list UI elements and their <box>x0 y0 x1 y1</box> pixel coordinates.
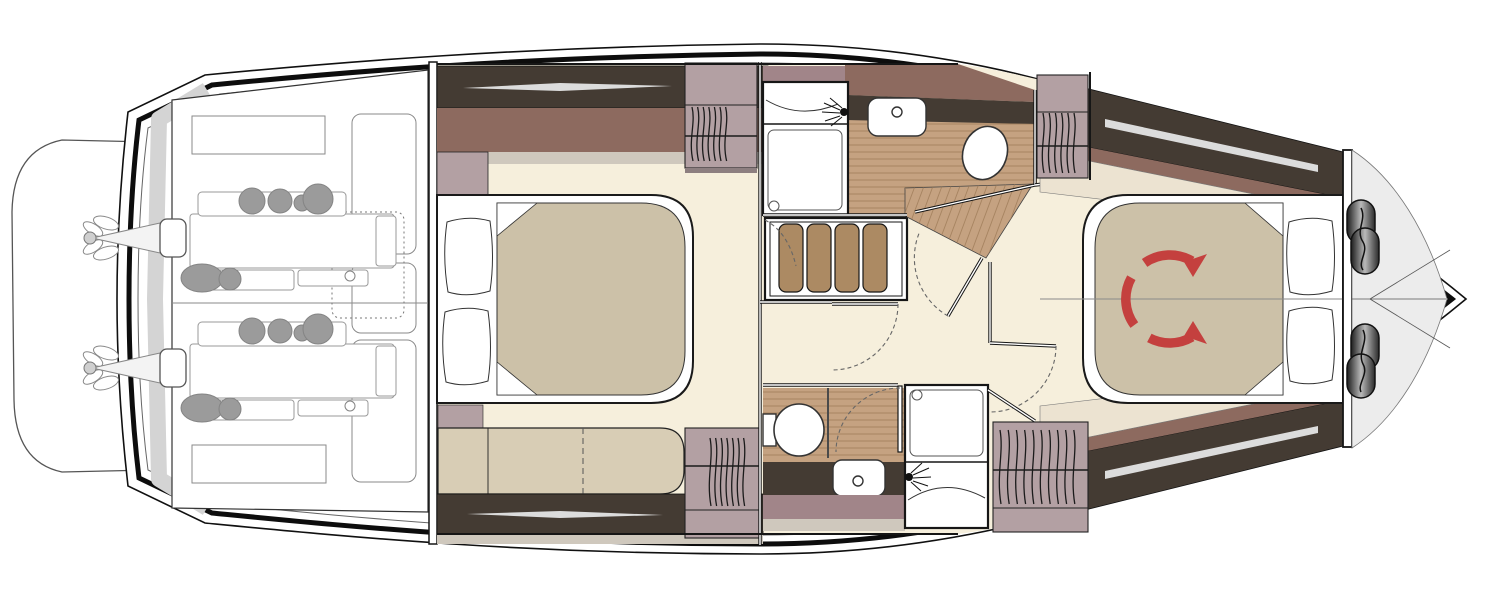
lower-toilet <box>774 404 824 456</box>
lower-head-door-leaf <box>898 386 902 452</box>
hanging-locker-master-bottom <box>993 422 1088 532</box>
upper-shower <box>763 82 848 215</box>
master-pillow-2 <box>1287 307 1335 384</box>
mid-bed-mattress <box>497 203 685 395</box>
bow-bulkhead <box>1343 150 1352 447</box>
upper-sink-faucet <box>892 107 902 117</box>
cabinet-end-small <box>438 405 483 428</box>
mid-bed-pillow-2 <box>443 308 491 385</box>
mid-bed-pillow-1 <box>445 218 493 295</box>
stair-tread <box>835 224 859 292</box>
stair-tread <box>863 224 887 292</box>
hanging-locker-master-top <box>1037 75 1088 178</box>
hanging-locker-aft <box>685 428 760 538</box>
lower-shower <box>905 385 988 528</box>
companionway-stairs <box>765 218 907 300</box>
mid-sofa <box>438 428 684 494</box>
shower-head-icon <box>840 108 848 116</box>
lower-head-strip <box>763 519 905 531</box>
hanging-locker-top <box>685 63 757 173</box>
floor-plan-canvas <box>0 0 1500 615</box>
stair-tread <box>807 224 831 292</box>
engine-room-bulkhead <box>429 62 437 544</box>
lower-head-mauve-band <box>763 495 905 519</box>
stair-tread <box>779 224 803 292</box>
lower-sink-faucet <box>853 476 863 486</box>
bow-cleat-bottom <box>1347 324 1379 398</box>
wardrobe-end <box>437 152 488 196</box>
master-pillow-1 <box>1287 218 1335 295</box>
bow-area <box>1347 150 1450 448</box>
shower-head-icon <box>905 473 913 481</box>
bow-cleat-top <box>1347 200 1379 274</box>
yacht-floor-plan <box>0 0 1500 615</box>
